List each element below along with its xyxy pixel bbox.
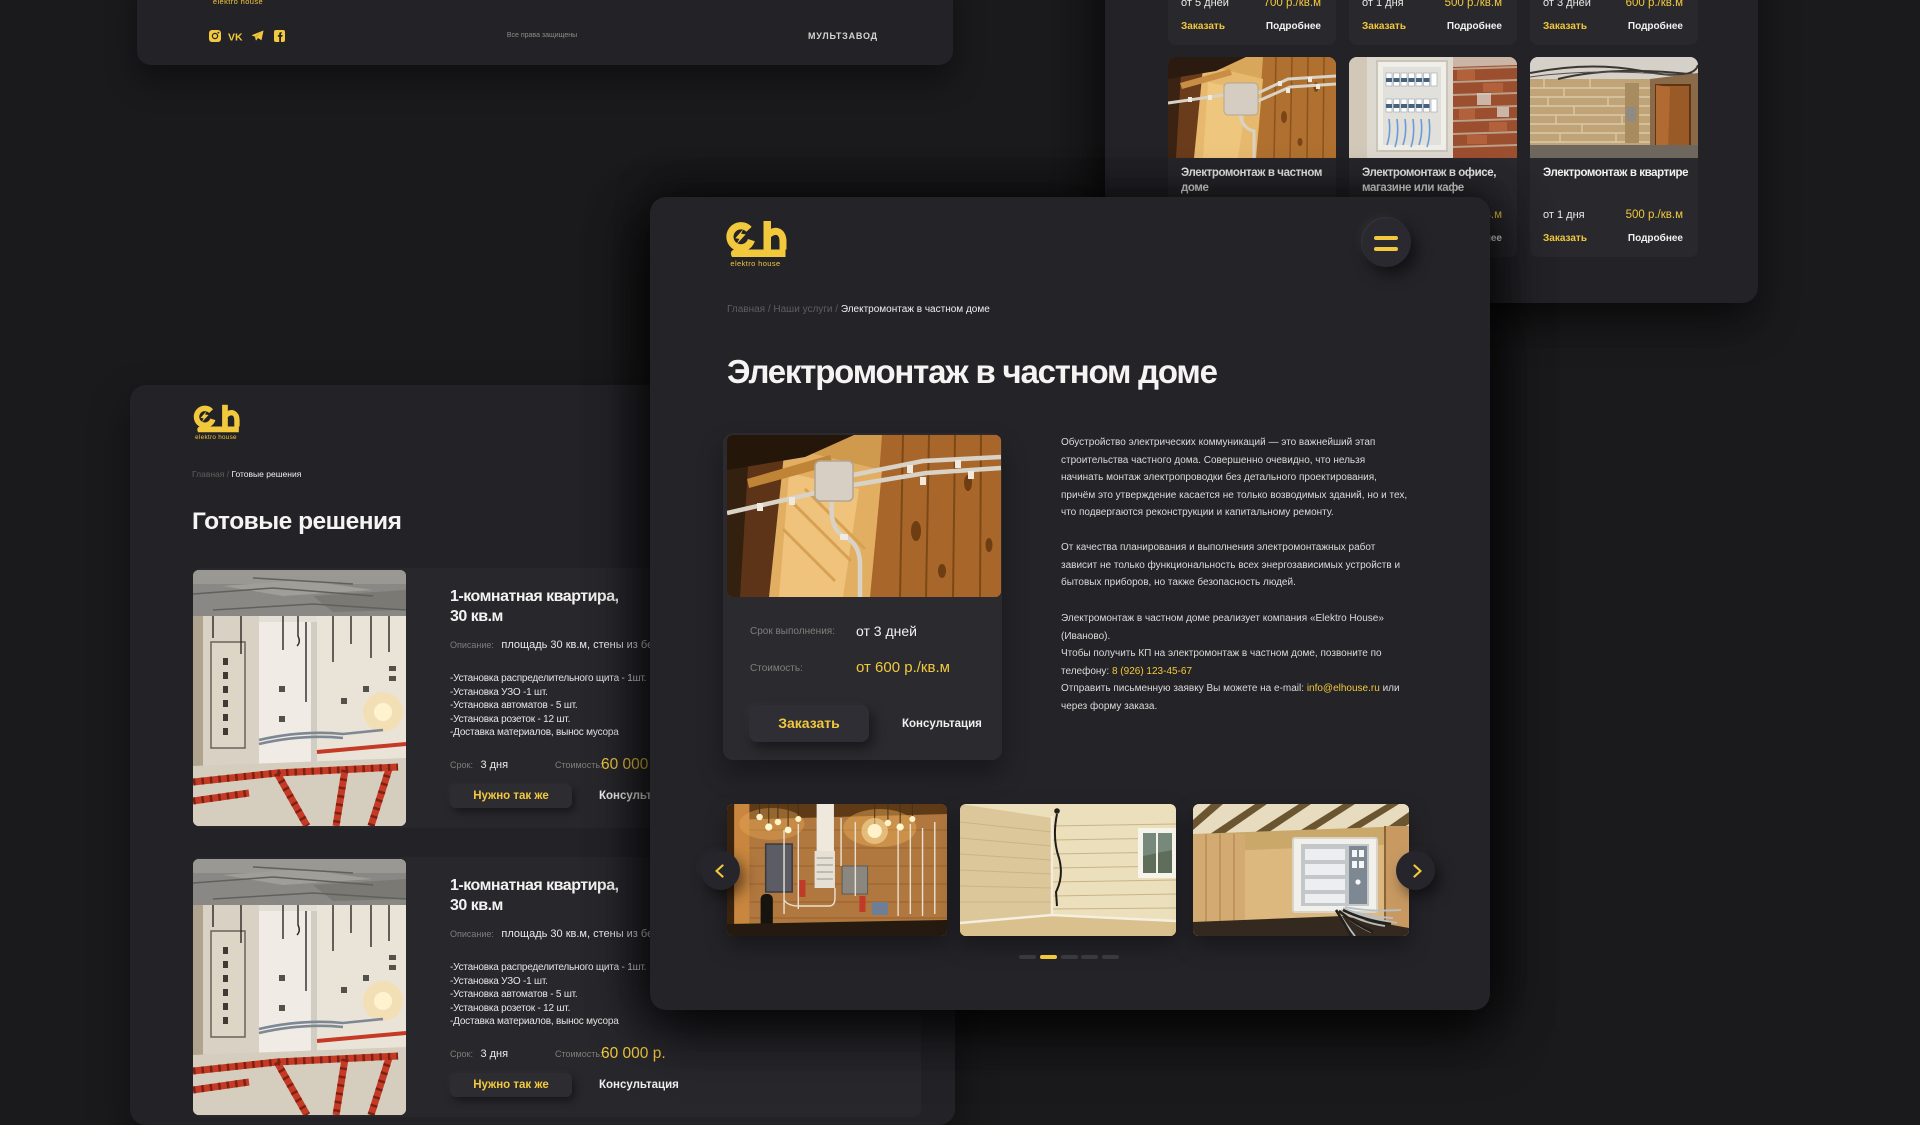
svg-text:VK: VK	[228, 31, 243, 41]
